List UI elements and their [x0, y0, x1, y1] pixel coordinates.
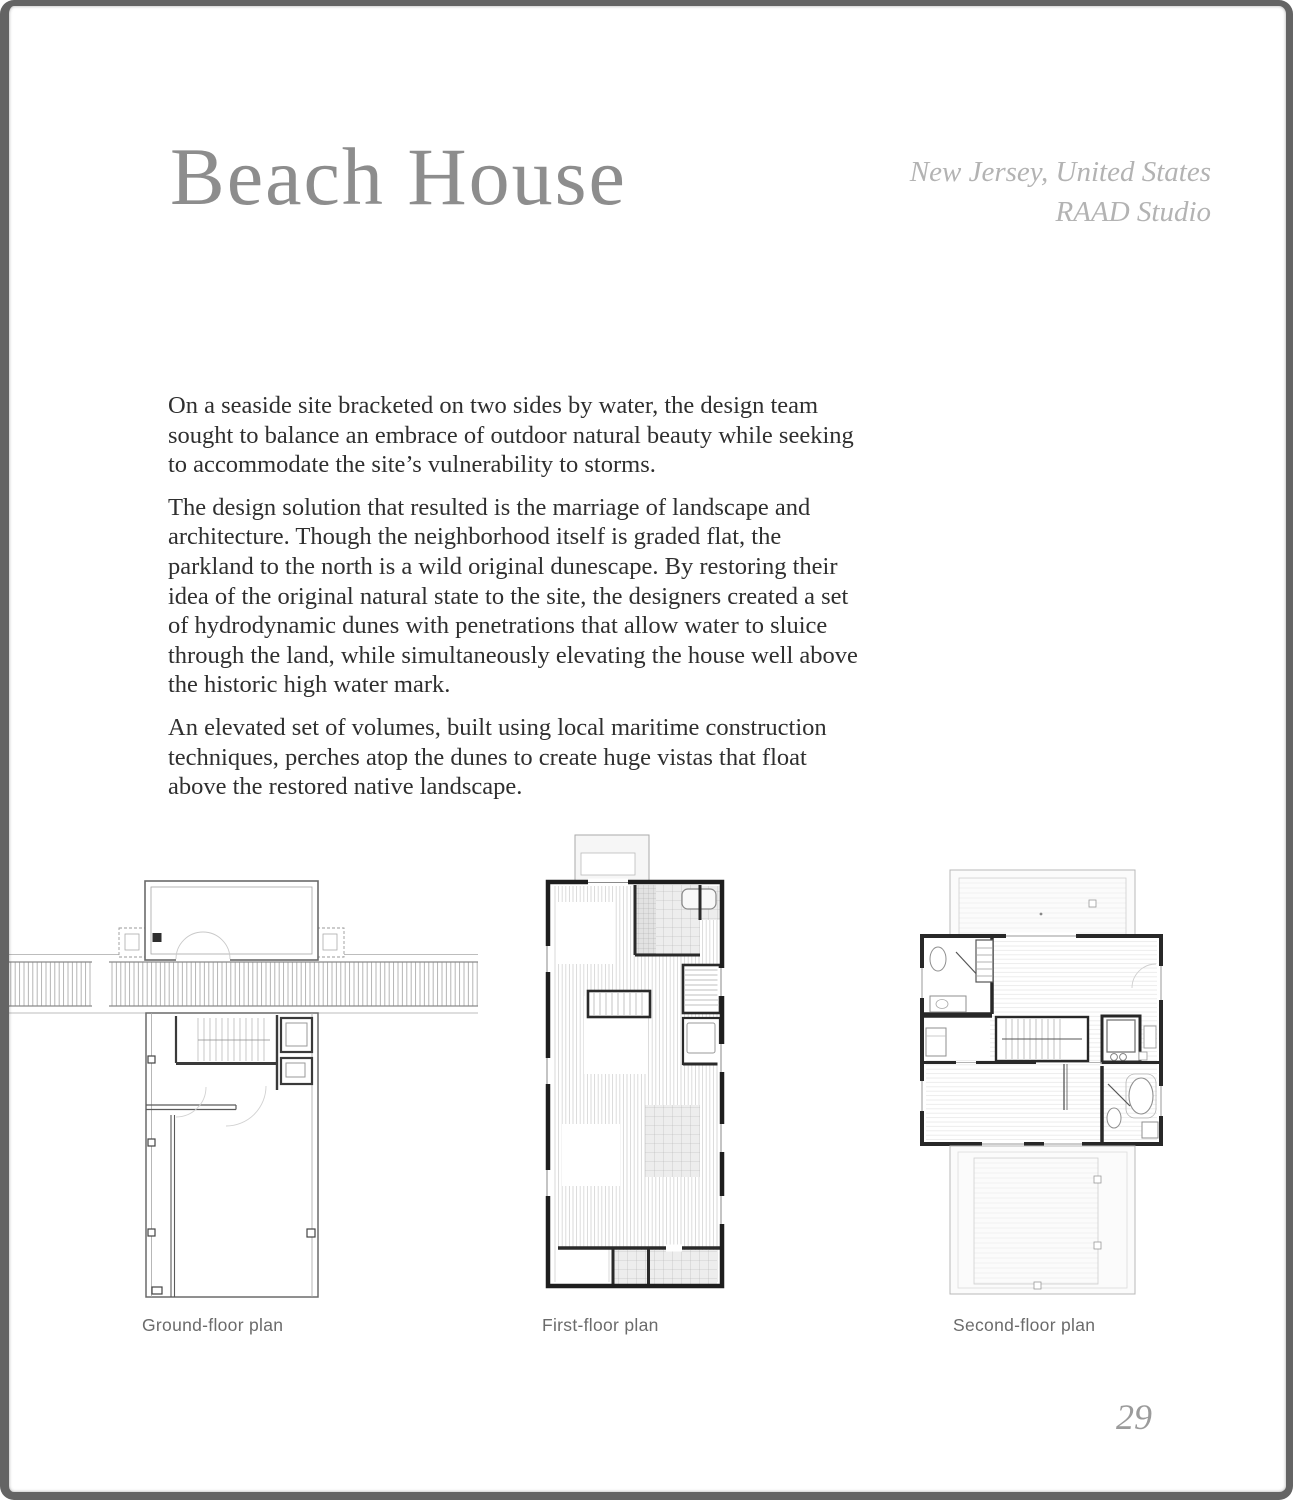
project-location: New Jersey, United States RAAD Studio: [910, 152, 1211, 232]
first-floor-plan-figure: [528, 828, 740, 1306]
body-text: On a seaside site bracketed on two sides…: [168, 391, 888, 815]
text-line: above the restored native landscape.: [168, 772, 888, 802]
paragraph: On a seaside site bracketed on two sides…: [168, 391, 888, 480]
paragraph: The design solution that resulted is the…: [168, 493, 888, 700]
text-line: sought to balance an embrace of outdoor …: [168, 421, 888, 451]
second-floor-plan-drawing: [886, 856, 1198, 1308]
text-line: techniques, perches atop the dunes to cr…: [168, 743, 888, 773]
location-line: New Jersey, United States: [910, 152, 1211, 192]
studio-name: RAAD Studio: [910, 192, 1211, 232]
text-line: On a seaside site bracketed on two sides…: [168, 391, 888, 421]
book-page: Beach House New Jersey, United States RA…: [0, 0, 1293, 1500]
paragraph: An elevated set of volumes, built using …: [168, 713, 888, 802]
text-line: through the land, while simultaneously e…: [168, 641, 888, 671]
page-number: 29: [1116, 1396, 1152, 1438]
page-title: Beach House: [170, 134, 627, 220]
text-line: The design solution that resulted is the…: [168, 493, 888, 523]
first-floor-plan-drawing: [528, 828, 740, 1306]
second-floor-plan-figure: [886, 856, 1198, 1308]
text-line: the historic high water mark.: [168, 670, 888, 700]
text-line: idea of the original natural state to th…: [168, 582, 888, 612]
ground-floor-plan-drawing: [0, 858, 480, 1300]
text-line: of hydrodynamic dunes with penetrations …: [168, 611, 888, 641]
caption-ground-floor-plan: Ground-floor plan: [142, 1315, 283, 1336]
text-line: to accommodate the site’s vulnerability …: [168, 450, 888, 480]
ground-floor-plan-figure: [0, 858, 480, 1300]
text-line: An elevated set of volumes, built using …: [168, 713, 888, 743]
caption-first-floor-plan: First-floor plan: [542, 1315, 659, 1336]
text-line: parkland to the north is a wild original…: [168, 552, 888, 582]
text-line: architecture. Though the neighborhood it…: [168, 522, 888, 552]
caption-second-floor-plan: Second-floor plan: [953, 1315, 1095, 1336]
